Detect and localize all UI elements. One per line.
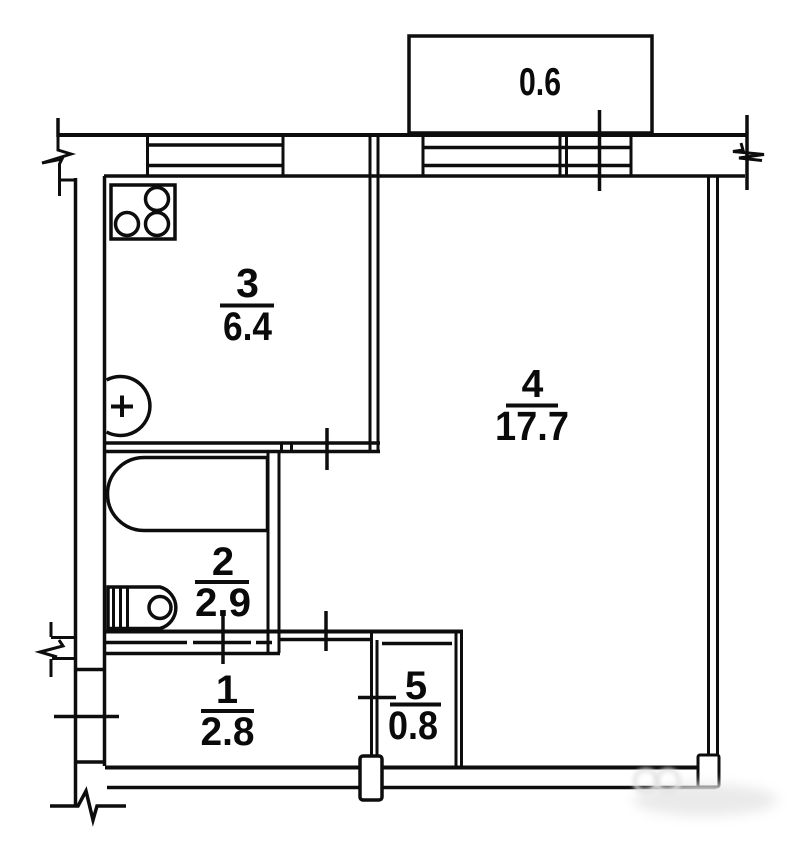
svg-text:4: 4 xyxy=(522,363,544,406)
svg-text:0.6: 0.6 xyxy=(519,61,561,104)
svg-text:0.8: 0.8 xyxy=(388,704,438,748)
svg-text:2: 2 xyxy=(212,540,234,584)
svg-text:3: 3 xyxy=(236,260,259,306)
svg-text:2.9: 2.9 xyxy=(195,581,251,625)
svg-text:5: 5 xyxy=(405,664,427,708)
svg-text:6.4: 6.4 xyxy=(223,305,273,349)
svg-text:2.8: 2.8 xyxy=(201,710,255,754)
svg-text:17.7: 17.7 xyxy=(495,403,569,449)
svg-text:1: 1 xyxy=(216,668,238,712)
